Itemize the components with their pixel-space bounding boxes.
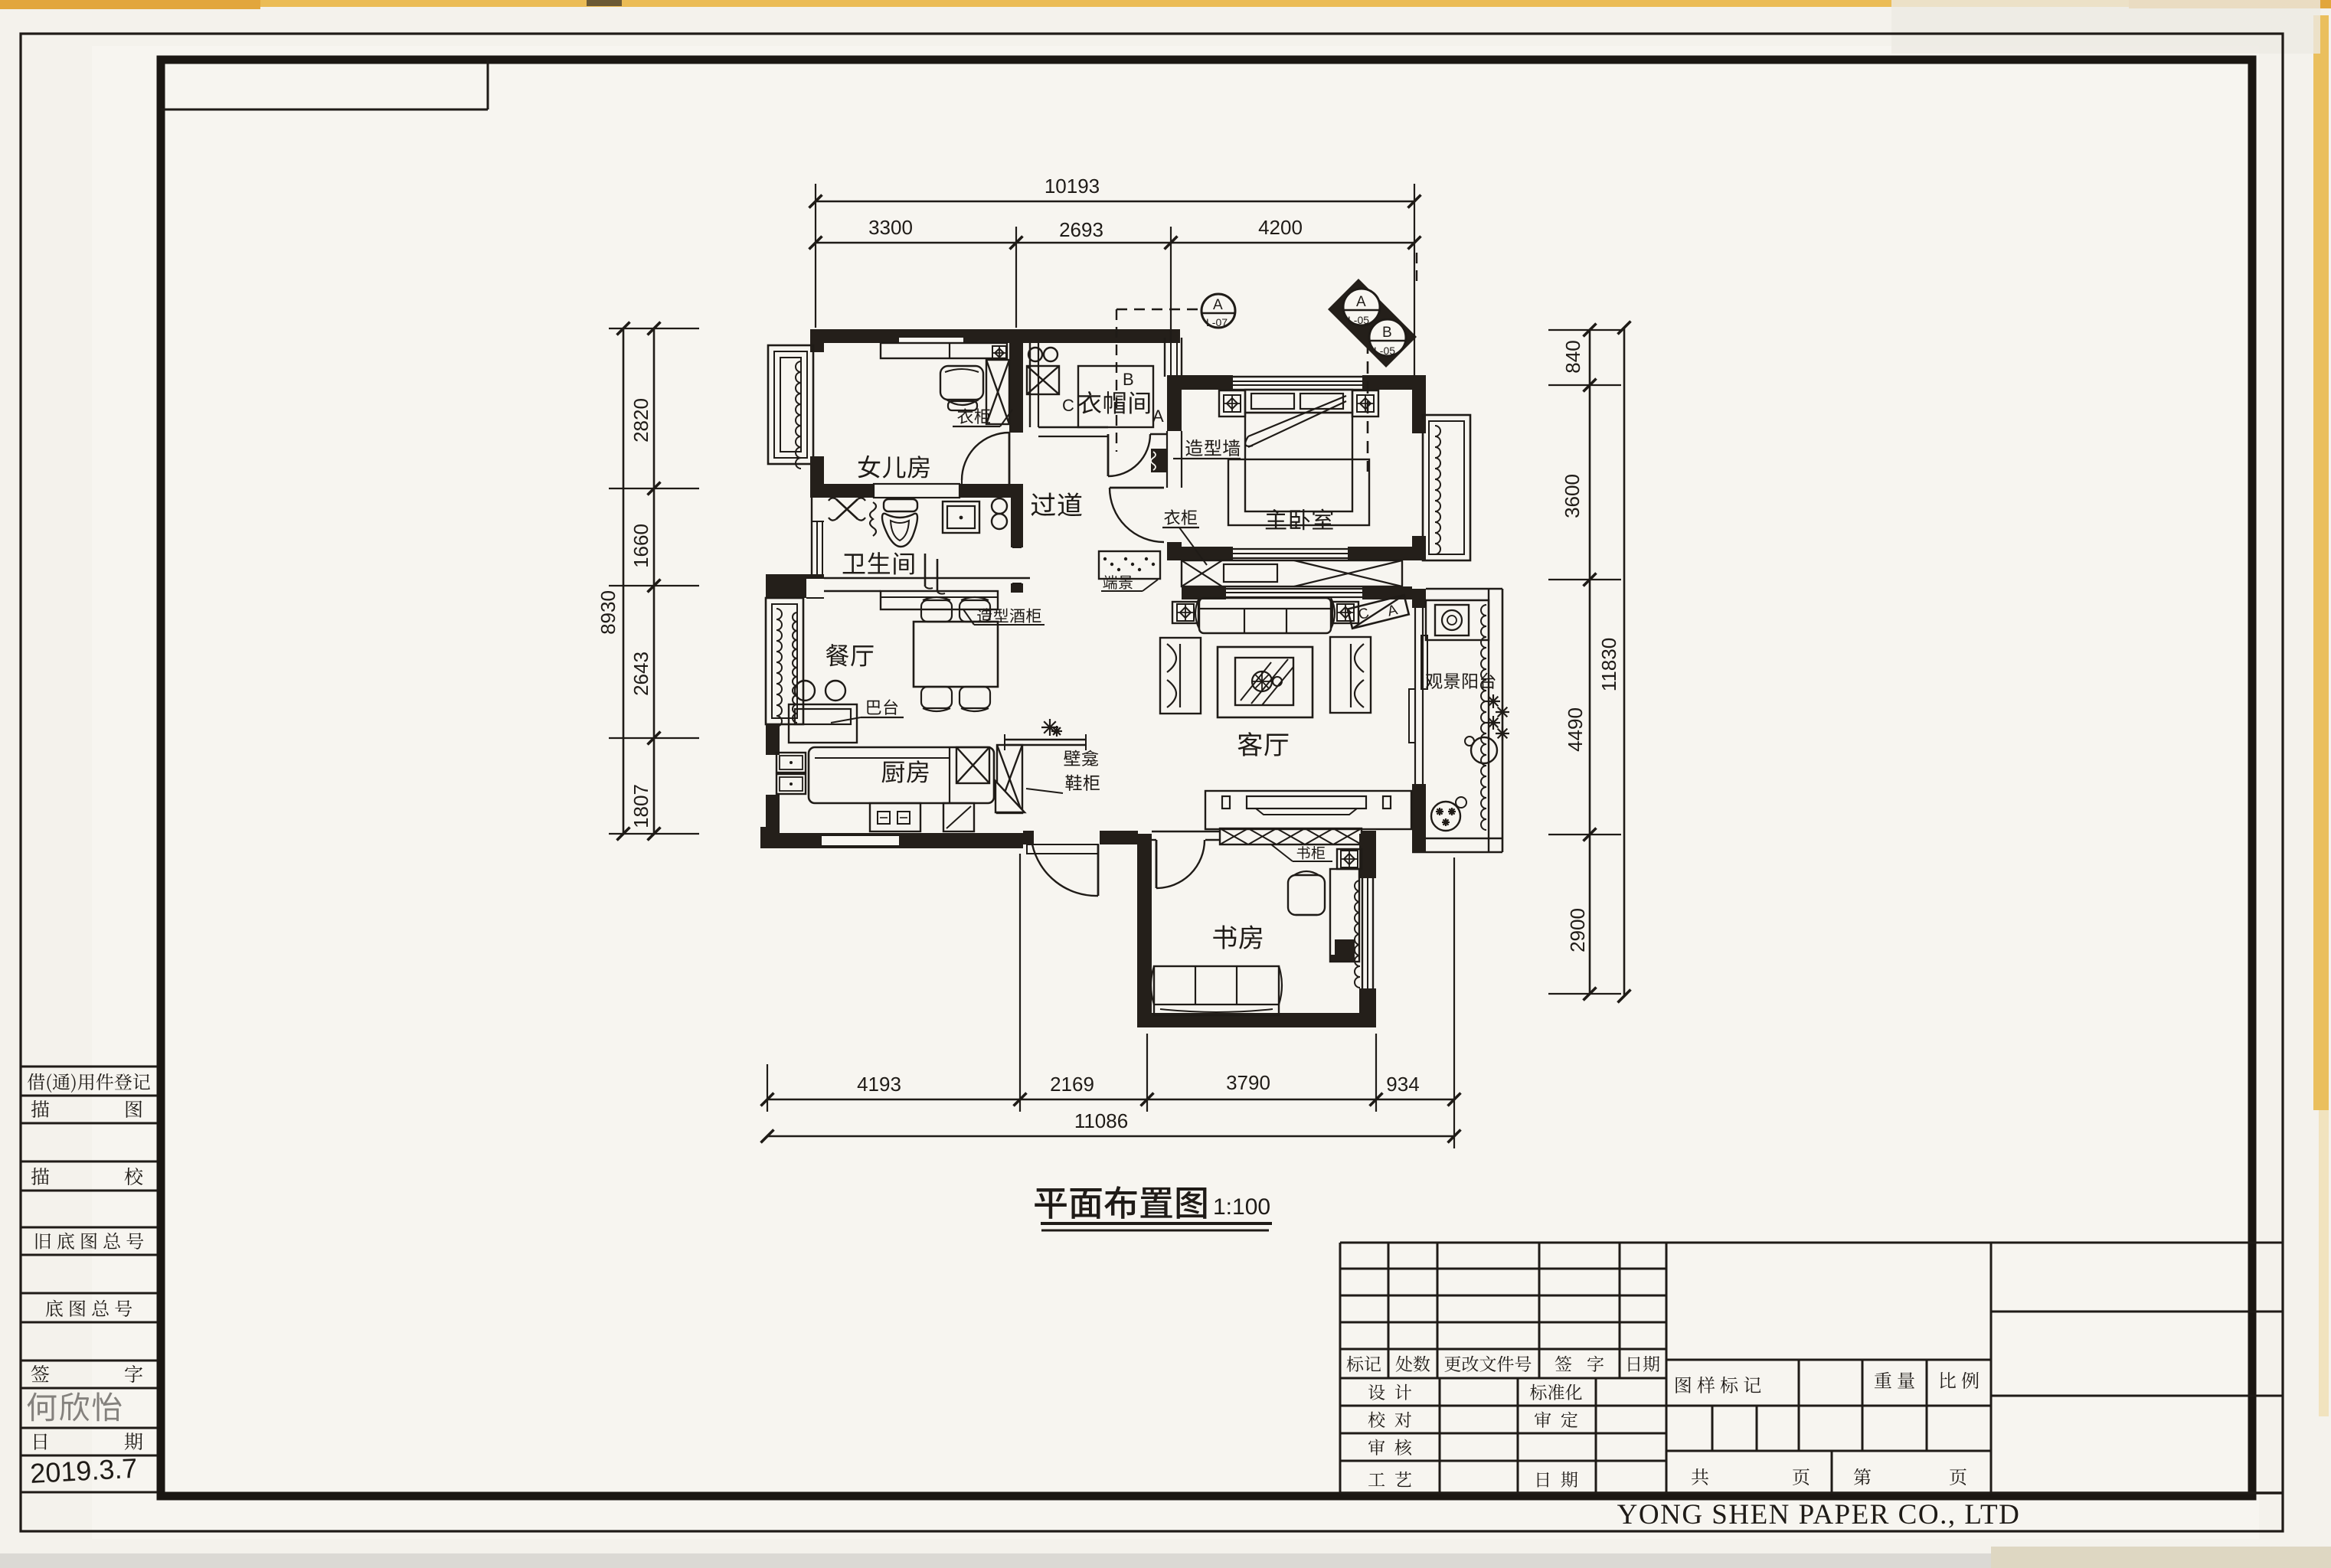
svg-text:2019.3.7: 2019.3.7 xyxy=(29,1452,138,1489)
svg-text:3790: 3790 xyxy=(1226,1071,1270,1094)
svg-text:4193: 4193 xyxy=(857,1073,901,1096)
svg-text:2900: 2900 xyxy=(1566,908,1589,952)
svg-text:2693: 2693 xyxy=(1059,218,1103,241)
svg-text:3600: 3600 xyxy=(1561,474,1584,518)
svg-text:840: 840 xyxy=(1561,340,1584,373)
svg-text:2643: 2643 xyxy=(629,652,652,696)
svg-text:2169: 2169 xyxy=(1050,1073,1094,1096)
svg-text:4490: 4490 xyxy=(1564,707,1587,752)
svg-text:L-05: L-05 xyxy=(1348,314,1369,326)
svg-text:L-07: L-07 xyxy=(1206,316,1228,328)
svg-text:11830: 11830 xyxy=(1597,638,1620,691)
svg-text:A: A xyxy=(1213,297,1223,313)
svg-text:A: A xyxy=(1152,407,1164,426)
svg-text:1660: 1660 xyxy=(629,524,652,568)
svg-text:3300: 3300 xyxy=(868,216,913,239)
svg-text:1:100: 1:100 xyxy=(1213,1194,1270,1220)
svg-text:2820: 2820 xyxy=(629,398,652,443)
svg-text:11086: 11086 xyxy=(1074,1109,1128,1132)
svg-text:YONG SHEN PAPER CO., LTD: YONG SHEN PAPER CO., LTD xyxy=(1617,1499,2021,1530)
svg-text:10193: 10193 xyxy=(1045,175,1100,198)
svg-text:B: B xyxy=(1123,370,1134,389)
svg-text:L-05: L-05 xyxy=(1374,345,1395,357)
svg-text:B: B xyxy=(1382,325,1392,341)
svg-text:A: A xyxy=(1356,294,1366,310)
svg-text:934: 934 xyxy=(1386,1073,1419,1096)
svg-text:1807: 1807 xyxy=(629,784,652,828)
svg-text:C: C xyxy=(1062,396,1074,415)
svg-text:8930: 8930 xyxy=(597,590,620,635)
svg-text:4200: 4200 xyxy=(1258,216,1303,239)
